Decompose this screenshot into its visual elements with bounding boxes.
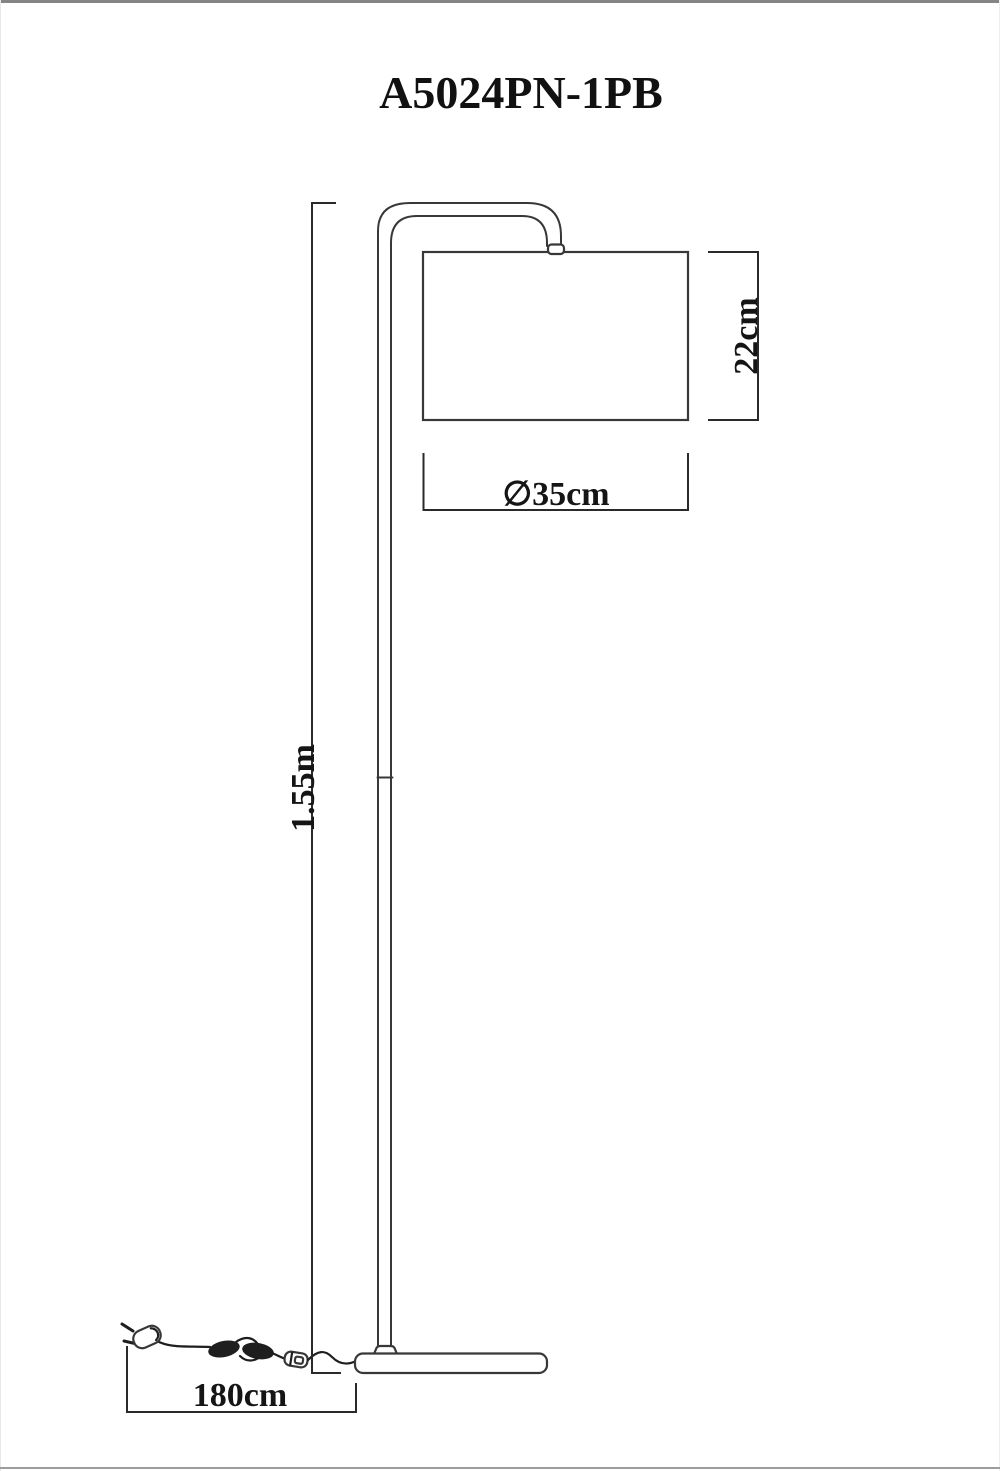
- socket-fitting: [548, 245, 564, 255]
- inline-switch: [284, 1351, 309, 1368]
- cord-coil: [207, 1338, 286, 1362]
- shade-diameter-label: ∅35cm: [502, 476, 609, 513]
- product-model-title: A5024PN-1PB: [379, 67, 663, 118]
- dimension-lamp-height: 1.55m: [285, 203, 341, 1373]
- floor-lamp-technical-drawing: A5024PN-1PB: [0, 0, 1000, 1471]
- lamp-base: [355, 1354, 547, 1374]
- coil-over-loop: [236, 1338, 257, 1343]
- switch-slider: [295, 1356, 304, 1364]
- cord-length-label: 180cm: [193, 1377, 287, 1414]
- dimension-shade-height: 22cm: [708, 252, 765, 420]
- page-bottom-border: [0, 1467, 1000, 1469]
- shade-height-label: 22cm: [728, 297, 765, 374]
- lamp-shade: [423, 252, 688, 420]
- dimension-shade-diameter: ∅35cm: [424, 453, 689, 513]
- cord-plug-to-coil: [157, 1341, 210, 1347]
- cord-switch-to-base: [308, 1352, 356, 1363]
- power-plug: [122, 1323, 163, 1351]
- plug-prong-upper: [122, 1324, 133, 1331]
- power-cord-assembly: [122, 1323, 356, 1368]
- lamp-height-label: 1.55m: [285, 744, 322, 832]
- product-dimension-sheet: A5024PN-1PB: [0, 0, 1000, 1471]
